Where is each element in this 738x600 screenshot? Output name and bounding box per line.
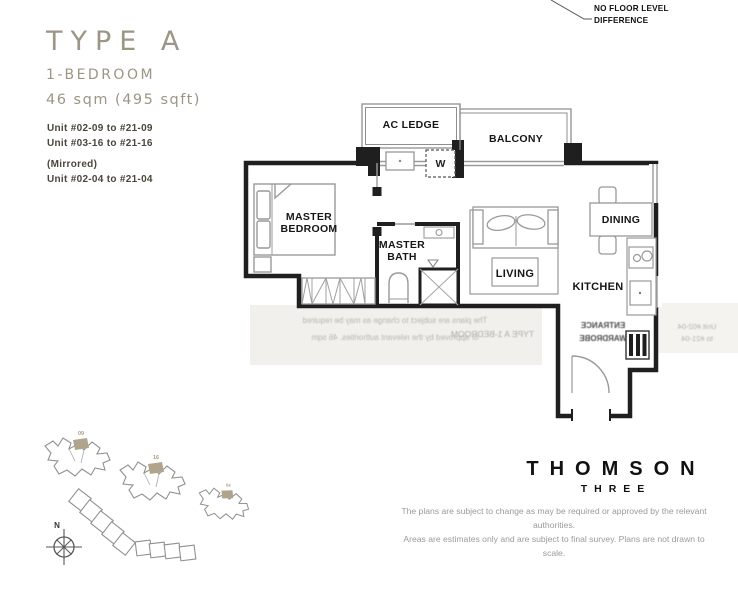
note-line1: NO FLOOR LEVEL [594,4,669,13]
stack-number: 04 [226,482,232,488]
wall-pillar [564,143,582,165]
north-compass: N [46,521,82,565]
watermark-text: to #21-04 [660,333,734,345]
site-plan: 09 16 04 [45,431,251,565]
highlighted-stack [73,438,89,450]
wardrobe-hatch [302,278,375,304]
label-kitchen: KITCHEN [573,281,624,293]
site-landed-row-diagonal [69,489,135,555]
site-tower: 04 [197,480,251,522]
disclaimer-line: The plans are subject to change as may b… [398,504,710,532]
label-master-bedroom: BEDROOM [281,223,338,235]
label-dining: DINING [602,214,641,226]
label-living: LIVING [496,268,534,280]
note-leader-line [551,0,592,19]
label-balcony: BALCONY [489,133,543,145]
north-label: N [54,521,60,530]
label-master-bath: MASTER [379,239,425,251]
site-landed-row-horizontal [135,540,196,561]
label-washer: W [436,158,446,170]
kitchen-counter [627,238,656,315]
brand-subname: THREE [480,483,738,495]
site-tower: 16 [120,455,185,500]
watermark-text: WARDROBE [568,332,638,345]
vanity-basin [424,227,454,238]
label-ac-ledge: AC LEDGE [383,119,440,131]
site-tower: 09 [45,431,110,476]
disclaimer: The plans are subject to change as may b… [398,504,710,560]
toilet [389,273,408,303]
watermark-text: Unit #02-04 [660,321,734,333]
note-line2: DIFFERENCE [594,16,649,25]
label-master-bedroom: MASTER [286,211,332,223]
disclaimer-line: Areas are estimates only and are subject… [398,532,710,560]
watermark-text: ENTRANCE [568,319,638,332]
watermark-mirrored-right: Unit #02-04 to #21-04 [660,321,734,345]
brand-logo: THOMSON THREE [480,458,738,495]
stack-number: 16 [153,455,159,461]
stack-number: 09 [78,431,84,437]
highlighted-stack [148,462,164,474]
floor-plan-page: TYPE A 1-BEDROOM 46 sqm (495 sqft) Unit … [0,0,738,600]
sofa [473,207,558,248]
ac-unit [386,152,414,170]
watermark-mirrored-mid: TYPE A 1-BEDROOM [430,329,555,339]
highlighted-stack [221,489,234,500]
watermark-mirrored-entrance: ENTRANCE WARDROBE [568,319,638,345]
brand-name: THOMSON [480,458,738,481]
watermark-text: The plans are subject to change as may b… [252,312,538,329]
label-master-bath: BATH [387,251,417,263]
